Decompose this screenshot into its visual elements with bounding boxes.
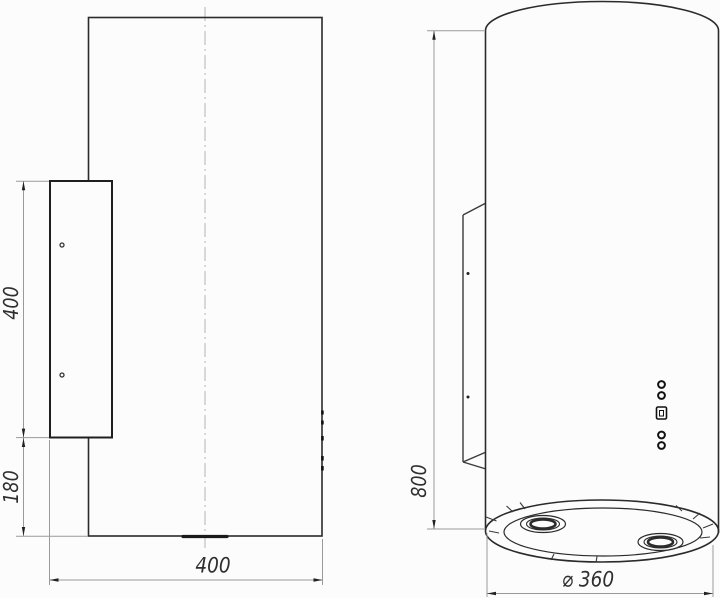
dim-label-bottom-offset: 180 xyxy=(1,470,21,504)
dim-label-bracket-height: 400 xyxy=(1,286,21,320)
lamp-left xyxy=(521,516,566,533)
dim-label-diameter: ⌀ 360 xyxy=(562,570,614,591)
top-arc xyxy=(486,1,719,30)
lamp-right xyxy=(638,534,683,551)
dim-label-body-height: 800 xyxy=(409,464,429,498)
arrow-down xyxy=(22,429,25,438)
dim-label-depth: 400 xyxy=(195,556,230,577)
hood-body-outline-front xyxy=(486,1,719,562)
round-button-icon xyxy=(658,381,665,388)
arrow-left xyxy=(487,592,496,595)
bracket-hole-bottom xyxy=(467,396,470,399)
arrow-left xyxy=(50,578,59,581)
arrow-down xyxy=(432,520,435,529)
display-icon xyxy=(657,407,667,419)
mounting-bracket-front xyxy=(463,204,486,470)
arrow-up xyxy=(432,31,435,40)
display-digit xyxy=(660,411,664,417)
bottom-rim-outer xyxy=(486,500,719,562)
arrow-right xyxy=(704,592,713,595)
side-view xyxy=(16,7,323,585)
dimension-depth xyxy=(50,440,323,585)
front-view xyxy=(427,1,719,597)
arrow-up xyxy=(22,438,25,447)
bracket-hole-top xyxy=(467,272,470,275)
arrow-right xyxy=(314,578,323,581)
drawing-linework xyxy=(0,0,720,598)
technical-drawing-range-hood: 400 180 400 800 ⌀ 360 xyxy=(0,0,720,598)
arrow-down xyxy=(22,527,25,536)
arrow-up xyxy=(22,181,25,190)
mounting-bracket xyxy=(50,181,112,438)
round-button-icon xyxy=(658,432,665,439)
round-button-icon xyxy=(658,442,665,449)
dimension-bottom-offset xyxy=(16,438,88,536)
control-panel xyxy=(657,381,667,449)
round-button-icon xyxy=(658,392,665,399)
dimension-body-height xyxy=(427,31,484,529)
